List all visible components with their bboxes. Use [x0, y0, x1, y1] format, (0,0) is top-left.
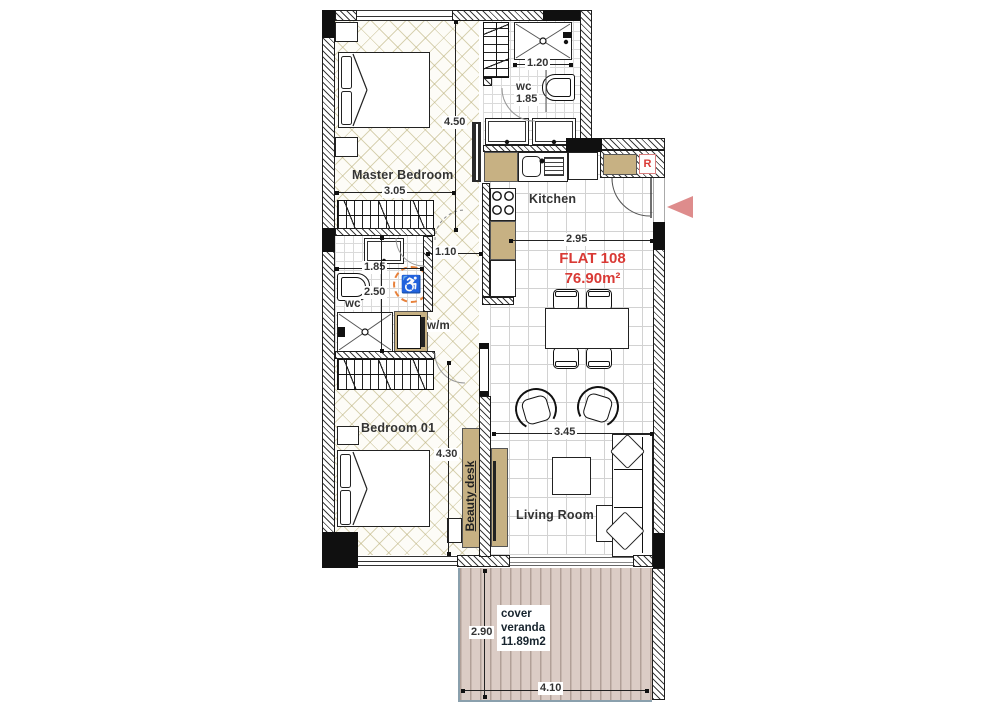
- shower-tray: [514, 22, 572, 60]
- veranda-line1: cover: [501, 607, 546, 621]
- wall-stub: [483, 78, 492, 86]
- wardrobe: [337, 359, 434, 390]
- dim-label: 1.20: [525, 57, 550, 70]
- fridge-label: R: [639, 154, 656, 174]
- nightstand: [337, 426, 359, 445]
- dim-label: 1.85: [514, 93, 539, 106]
- dining-chair: [586, 347, 612, 369]
- washing-machine: [397, 315, 421, 349]
- nightstand: [335, 22, 358, 42]
- fridge-counter: [603, 154, 637, 175]
- veranda-sliding-door: [510, 557, 633, 566]
- sliding-door-track: [476, 124, 478, 180]
- wardrobe-tall: [483, 22, 509, 78]
- window-bedroom01: [358, 556, 457, 566]
- dim-label: 4.30: [434, 448, 459, 461]
- sliding-door-living: [479, 343, 489, 397]
- sofa-cushion-line: [614, 469, 643, 470]
- room-label-wc-mid: wc: [345, 298, 361, 310]
- column: [566, 138, 602, 152]
- room-label-living-room: Living Room: [516, 508, 594, 522]
- washing-machine-panel: [421, 317, 425, 347]
- sofa-cushion-line: [614, 507, 643, 508]
- wall-wc-bottom: [335, 351, 435, 359]
- wheelchair-glyph: ♿: [401, 275, 422, 295]
- pillow: [340, 490, 351, 525]
- dim-label: 1.10: [433, 246, 458, 259]
- dim-label: 2.95: [564, 233, 589, 246]
- wall-right: [653, 222, 665, 568]
- pillow: [341, 56, 352, 89]
- room-label-master-bedroom: Master Bedroom: [352, 168, 453, 182]
- column: [653, 222, 665, 250]
- sliding-door-master: [472, 122, 481, 182]
- label-washing-machine: w/m: [427, 320, 450, 332]
- wall-top: [335, 10, 357, 21]
- column: [322, 532, 358, 568]
- dim-label: 3.05: [382, 185, 407, 198]
- dim-label: 4.50: [442, 116, 467, 129]
- pillow: [340, 454, 351, 488]
- wall-bedroom-living: [479, 396, 491, 557]
- label-beauty-desk: Beauty desk: [463, 441, 477, 551]
- dim-label: 2.50: [362, 286, 387, 299]
- dim-label: 2.90: [469, 626, 494, 639]
- tv-screen: [493, 461, 496, 541]
- veranda-line3: 11.89m2: [501, 635, 546, 649]
- column: [653, 533, 665, 568]
- entrance-arrow-icon: [667, 196, 693, 218]
- room-label-kitchen: Kitchen: [529, 192, 576, 206]
- coffee-table: [552, 457, 591, 495]
- wall-wc-top: [335, 228, 435, 236]
- wall-wc-right: [423, 236, 433, 312]
- sink-basin: [522, 156, 541, 177]
- dim-label: 3.45: [552, 426, 577, 439]
- shower-tray-accessible: [337, 312, 393, 352]
- kitchen-counter-low: [490, 260, 516, 297]
- wall-shower-right: [580, 10, 592, 140]
- stove: [490, 188, 516, 221]
- column: [543, 10, 580, 21]
- bathroom-sink: [485, 118, 529, 145]
- washing-machine-niche: [394, 311, 428, 353]
- wall-top: [452, 10, 544, 21]
- flat-title: FLAT 108 76.90m²: [545, 249, 640, 289]
- toilet: [542, 74, 575, 101]
- dim-label: 1.85: [362, 261, 387, 274]
- flat-name: FLAT 108: [545, 249, 640, 269]
- dining-chair: [553, 347, 579, 369]
- wall-bottom: [633, 555, 653, 567]
- window-master-bedroom: [357, 10, 452, 21]
- column: [322, 10, 335, 38]
- column: [322, 228, 335, 252]
- sink-drainer: [544, 157, 564, 176]
- wall-veranda-right: [652, 568, 665, 700]
- kitchen-counter: [484, 152, 518, 182]
- dim-label: 4.10: [538, 682, 563, 695]
- wall-corridor-kitchen: [482, 183, 490, 297]
- wall-counter-end: [482, 297, 514, 305]
- entrance-opening: [653, 178, 665, 222]
- dining-table: [545, 308, 629, 349]
- veranda-label: cover veranda 11.89m2: [497, 605, 550, 651]
- wall-left: [322, 10, 335, 568]
- nightstand: [335, 137, 358, 157]
- room-label-bedroom01: Bedroom 01: [361, 421, 435, 435]
- kitchen-cabinet: [568, 152, 598, 180]
- wardrobe: [337, 200, 434, 231]
- room-label-wc-top: wc: [516, 81, 532, 93]
- flat-area: 76.90m²: [545, 269, 640, 289]
- desk-stool: [447, 518, 462, 543]
- pillow: [341, 91, 352, 125]
- floor-plan: ♿ R: [0, 0, 1000, 720]
- veranda-line2: veranda: [501, 621, 546, 635]
- kitchen-sink-unit: [518, 152, 568, 182]
